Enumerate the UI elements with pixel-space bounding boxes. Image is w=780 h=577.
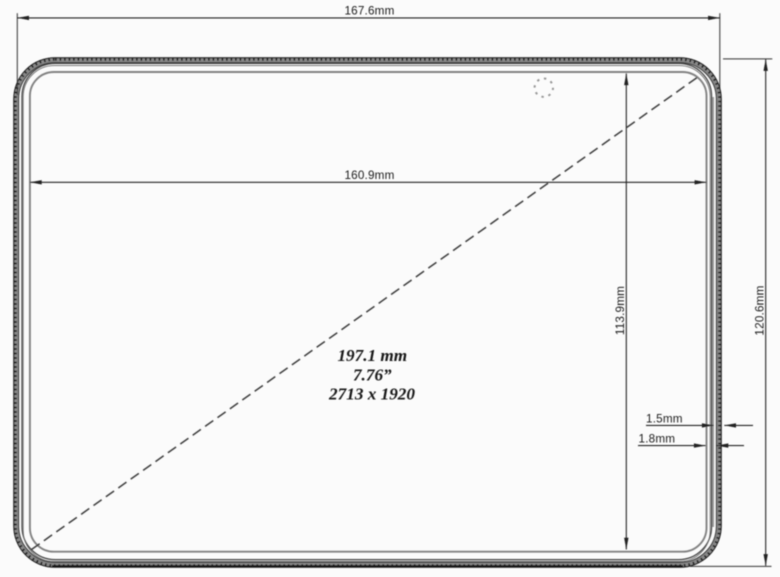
svg-text:120.6mm: 120.6mm xyxy=(753,285,766,335)
svg-text:160.9mm: 160.9mm xyxy=(344,169,394,182)
svg-text:197.1 mm: 197.1 mm xyxy=(337,346,407,365)
svg-text:2713 x 1920: 2713 x 1920 xyxy=(328,384,415,403)
svg-text:1.5mm: 1.5mm xyxy=(646,412,683,425)
svg-text:1.8mm: 1.8mm xyxy=(639,433,676,446)
svg-text:167.6mm: 167.6mm xyxy=(344,5,394,18)
svg-text:7.76”: 7.76” xyxy=(353,365,392,384)
svg-text:113.9mm: 113.9mm xyxy=(614,286,627,335)
